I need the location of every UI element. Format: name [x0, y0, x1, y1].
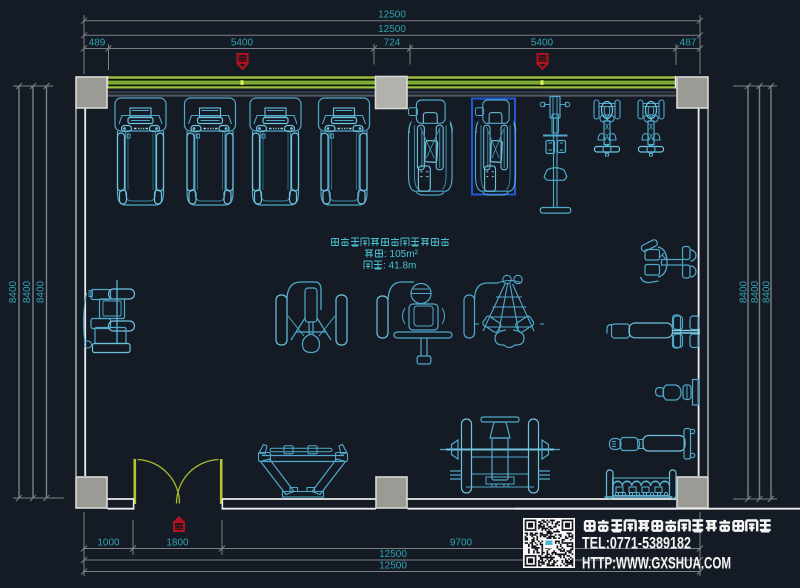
svg-text:8400: 8400 — [750, 280, 761, 303]
svg-text:1800: 1800 — [166, 538, 189, 549]
svg-text:HTTP:WWW.GXSHUA.COM: HTTP:WWW.GXSHUA.COM — [582, 555, 731, 573]
svg-text:8400: 8400 — [8, 280, 19, 303]
svg-text:8400: 8400 — [739, 280, 750, 303]
svg-text:12500: 12500 — [378, 10, 406, 21]
svg-text:8400: 8400 — [22, 280, 33, 303]
svg-text:: 105m²: : 105m² — [384, 249, 419, 260]
svg-text:12500: 12500 — [379, 549, 407, 560]
svg-text:12500: 12500 — [378, 24, 406, 35]
svg-text:5400: 5400 — [531, 38, 554, 49]
svg-text:489: 489 — [89, 38, 106, 49]
svg-text:8400: 8400 — [762, 280, 773, 303]
svg-text:5400: 5400 — [231, 38, 254, 49]
svg-text:8400: 8400 — [36, 280, 47, 303]
svg-text:724: 724 — [384, 38, 401, 49]
svg-text:487: 487 — [680, 38, 697, 49]
svg-text:1000: 1000 — [97, 538, 120, 549]
svg-text:12500: 12500 — [379, 561, 407, 572]
svg-text:: 41.8m: : 41.8m — [383, 261, 416, 272]
svg-text:9700: 9700 — [450, 538, 473, 549]
svg-text:TEL:0771-5389182: TEL:0771-5389182 — [582, 535, 691, 553]
